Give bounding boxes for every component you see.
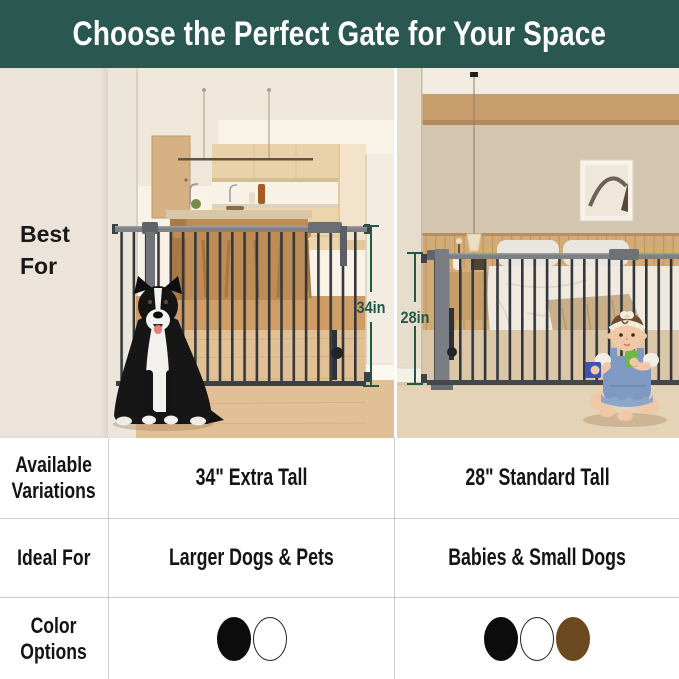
row-label-best-for: Best For <box>0 68 108 438</box>
bedroom-scene-illustration <box>397 68 679 438</box>
left-product-photo <box>108 68 394 438</box>
brown-color-swatch <box>556 617 590 661</box>
best-for-row: Best For <box>0 68 679 438</box>
comparison-table: Available Variations 34" Extra Tall 28" … <box>0 438 679 679</box>
left-color-swatches <box>108 597 394 679</box>
left-variation-cell: 34" Extra Tall <box>108 438 394 518</box>
wall-art-frame <box>580 160 633 221</box>
right-color-swatches <box>394 597 679 679</box>
row-label-variations: Available Variations <box>0 438 108 518</box>
white-color-swatch <box>520 617 554 661</box>
product-comparison-infographic: Choose the Perfect Gate for Your Space B… <box>0 0 679 679</box>
right-product-photo <box>397 68 679 438</box>
kitchen-scene-illustration <box>108 68 394 438</box>
right-variation-cell: 28" Standard Tall <box>394 438 679 518</box>
row-label-ideal-for: Ideal For <box>0 518 108 597</box>
right-height-label: 28in <box>390 308 441 328</box>
black-color-swatch <box>484 617 518 661</box>
black-color-swatch <box>217 617 251 661</box>
header-banner: Choose the Perfect Gate for Your Space <box>0 0 679 68</box>
white-color-swatch <box>253 617 287 661</box>
row-label-color-options: Color Options <box>0 597 108 679</box>
page-title: Choose the Perfect Gate for Your Space <box>73 15 607 54</box>
right-ideal-cell: Babies & Small Dogs <box>394 518 679 597</box>
left-ideal-cell: Larger Dogs & Pets <box>108 518 394 597</box>
